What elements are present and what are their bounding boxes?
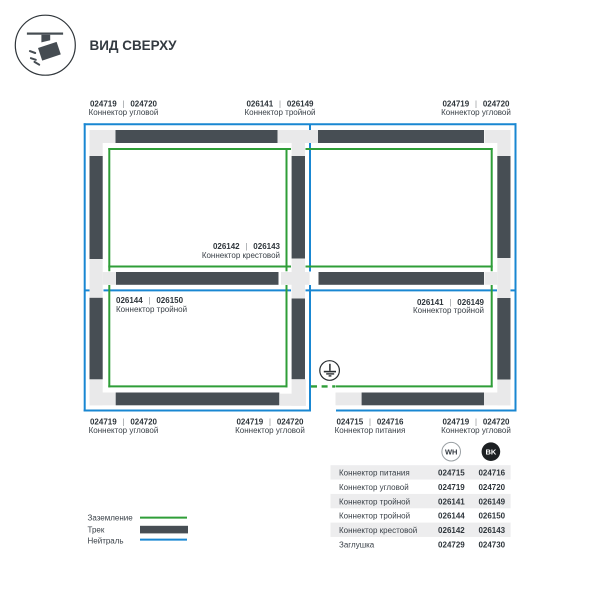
svg-text:Коннектор угловой: Коннектор угловой [441,108,511,117]
svg-text:Заглушка: Заглушка [339,540,375,549]
svg-text:026141|026149: 026141|026149 [246,100,314,109]
svg-text:026143: 026143 [478,526,505,535]
svg-text:Трек: Трек [88,525,105,534]
svg-text:Коннектор тройной: Коннектор тройной [339,497,410,506]
svg-text:024720: 024720 [478,483,505,492]
svg-text:Коннектор тройной: Коннектор тройной [116,305,187,314]
svg-text:Коннектор угловой: Коннектор угловой [339,483,409,492]
svg-text:026150: 026150 [478,512,505,521]
svg-text:Коннектор угловой: Коннектор угловой [441,426,511,435]
svg-text:Коннектор крестовой: Коннектор крестовой [202,251,280,260]
svg-text:WH: WH [445,448,458,457]
svg-text:BK: BK [485,448,496,457]
svg-text:Коннектор тройной: Коннектор тройной [339,512,410,521]
svg-text:026142: 026142 [438,526,465,535]
svg-text:024715: 024715 [438,469,465,478]
svg-text:Коннектор угловой: Коннектор угловой [89,108,159,117]
svg-text:026144|026150: 026144|026150 [116,296,184,305]
svg-text:Коннектор тройной: Коннектор тройной [413,306,484,315]
svg-text:Заземление: Заземление [88,514,134,523]
svg-text:024729: 024729 [438,540,465,549]
svg-text:Коннектор тройной: Коннектор тройной [244,108,315,117]
svg-text:026149: 026149 [478,497,505,506]
svg-text:026142|026143: 026142|026143 [213,242,281,251]
svg-text:Нейтраль: Нейтраль [88,536,124,545]
svg-text:024730: 024730 [478,540,505,549]
svg-text:Коннектор питания: Коннектор питания [335,426,406,435]
svg-text:026144: 026144 [438,512,465,521]
svg-text:Коннектор угловой: Коннектор угловой [235,426,305,435]
svg-text:Коннектор крестовой: Коннектор крестовой [339,526,417,535]
svg-text:024719|024720: 024719|024720 [442,100,510,109]
svg-text:Коннектор питания: Коннектор питания [339,469,410,478]
svg-text:Коннектор угловой: Коннектор угловой [89,426,159,435]
svg-text:024719: 024719 [438,483,465,492]
svg-text:026141: 026141 [438,497,465,506]
svg-text:024719|024720: 024719|024720 [90,100,158,109]
svg-text:024716: 024716 [478,469,505,478]
svg-text:ВИД СВЕРХУ: ВИД СВЕРХУ [90,38,177,54]
